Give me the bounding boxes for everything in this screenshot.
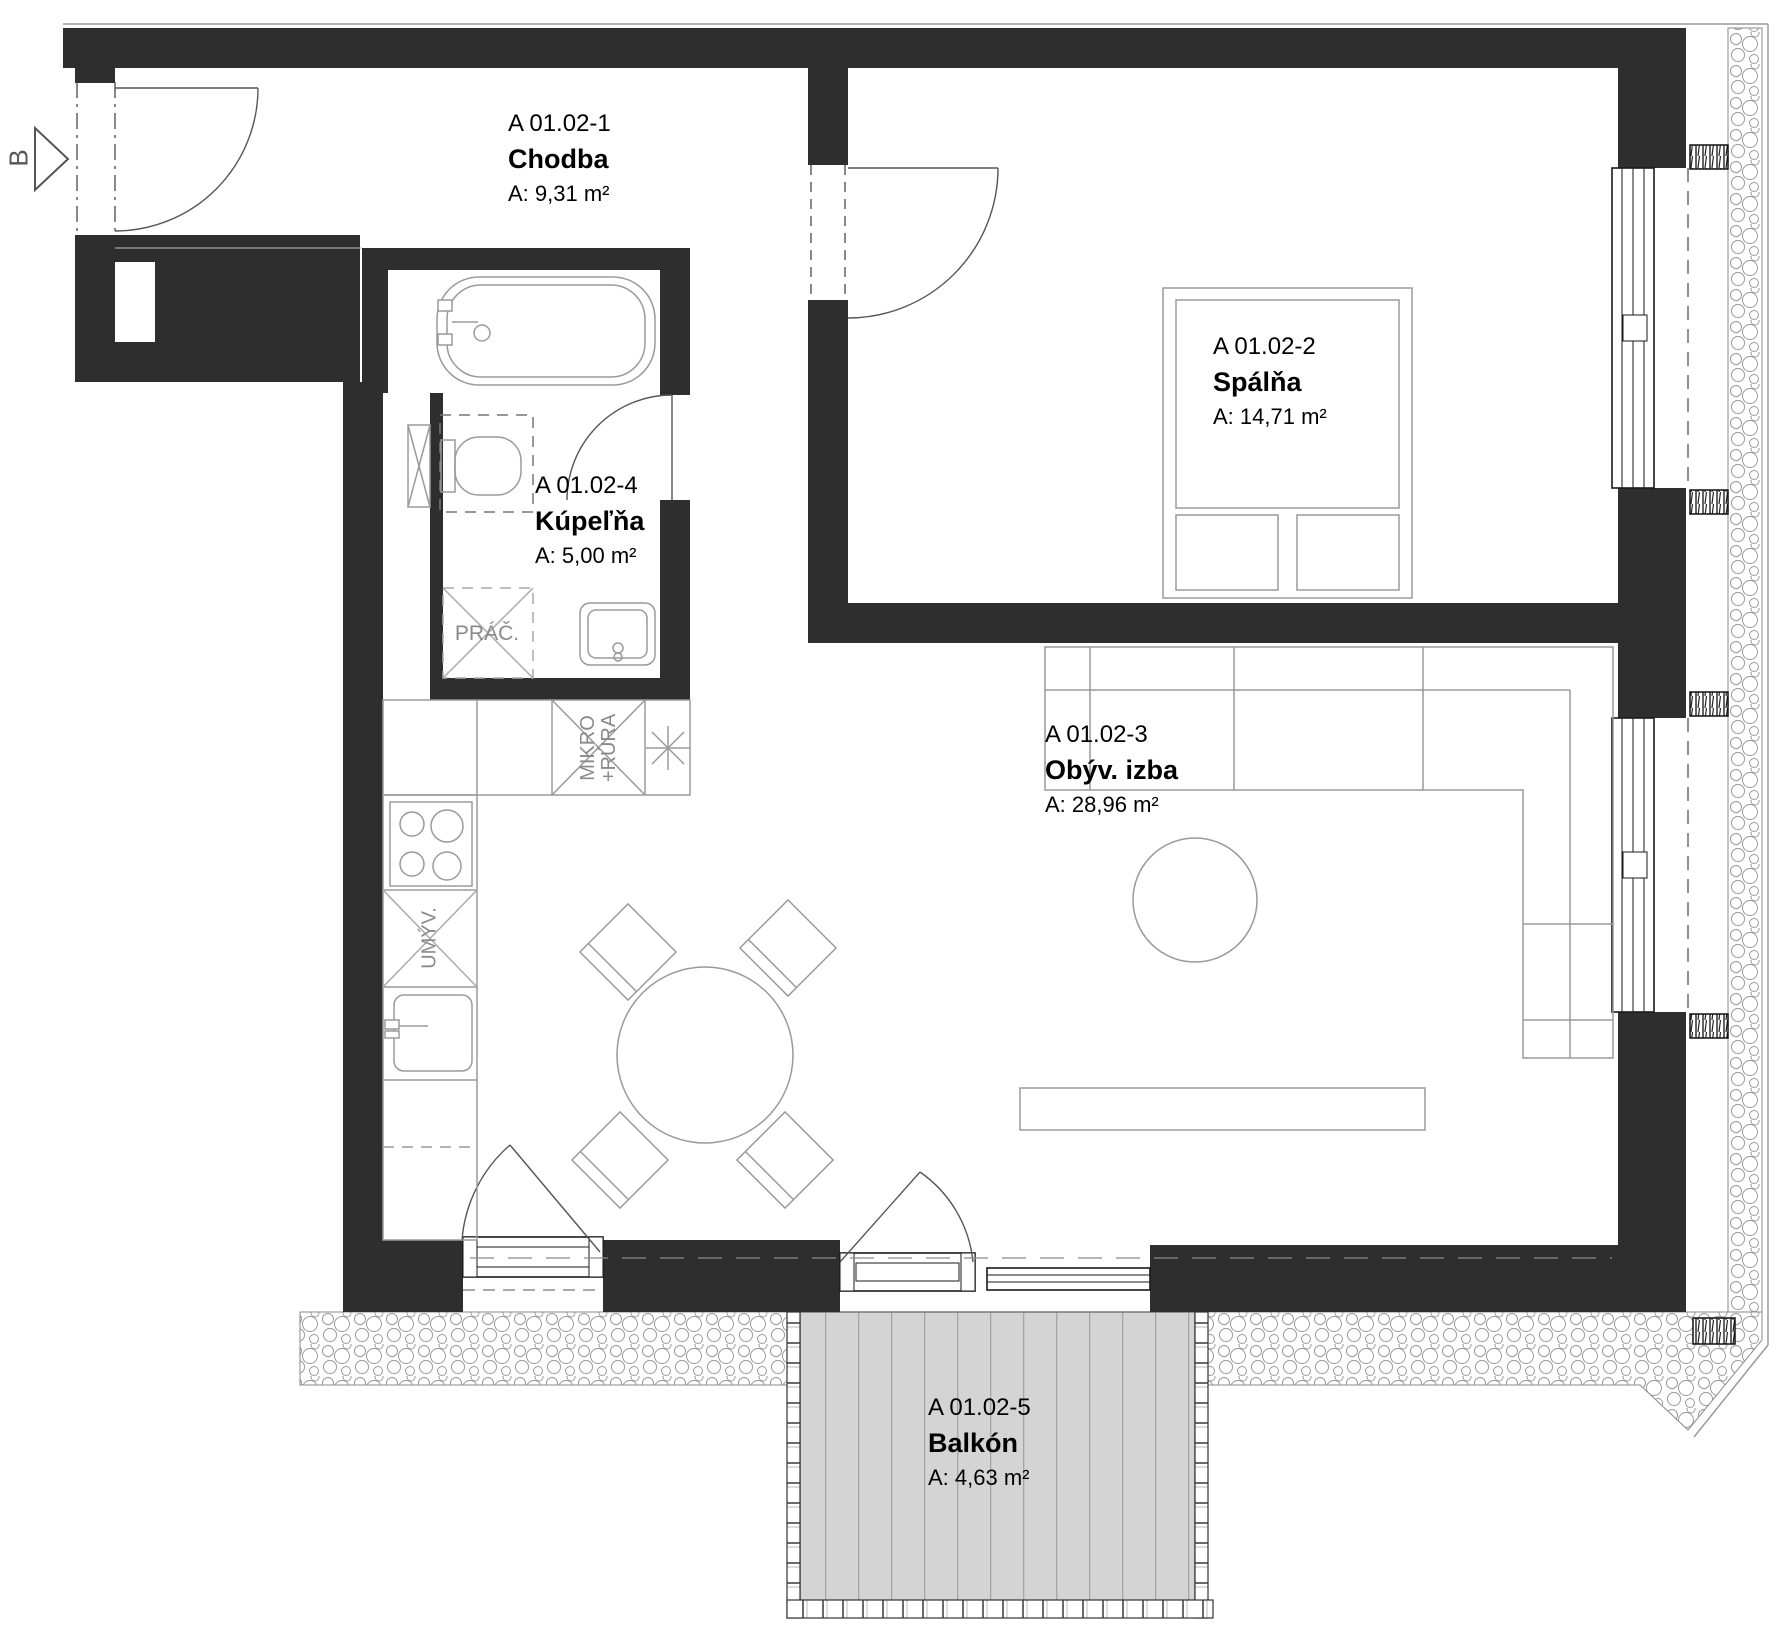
room-name: Kúpeľňa (535, 508, 644, 535)
room-area: A: 28,96 m² (1045, 794, 1178, 816)
kitchen-counter-top-run (383, 700, 690, 795)
room-label-obyv-izba: A 01.02-3 Obýv. izba A: 28,96 m² (1045, 723, 1178, 816)
room-name: Balkón (928, 1430, 1031, 1457)
fixed-window-strip (987, 1268, 1150, 1290)
dining-table (617, 967, 793, 1143)
room-name: Spálňa (1213, 369, 1327, 396)
living-room-window (1612, 718, 1688, 1012)
cooktop (390, 802, 472, 886)
light-symbol (646, 726, 690, 770)
dishwasher-label: UMÝV. (420, 907, 441, 969)
bathtub (437, 277, 655, 385)
dining-chair (580, 904, 676, 1000)
wall-niche (115, 262, 155, 342)
sideboard (1020, 1088, 1425, 1130)
room-id: A 01.02-3 (1045, 723, 1178, 747)
room-name: Obýv. izba (1045, 757, 1178, 784)
kitchen-door-threshold (463, 1237, 603, 1290)
balcony-door-threshold (840, 1253, 975, 1291)
floor-plan: A 01.02-1 Chodba A: 9,31 m² A 01.02-2 Sp… (0, 0, 1786, 1639)
room-label-spalna: A 01.02-2 Spálňa A: 14,71 m² (1213, 335, 1327, 428)
kitchen-sink (385, 995, 472, 1071)
room-label-kupelna: A 01.02-4 Kúpeľňa A: 5,00 m² (535, 474, 644, 567)
entrance-door (77, 82, 258, 232)
room-label-chodba: A 01.02-1 Chodba A: 9,31 m² (508, 112, 611, 205)
room-area: A: 9,31 m² (508, 183, 611, 205)
balcony-door-swing (840, 1172, 973, 1262)
bedroom-window (1612, 168, 1688, 488)
room-area: A: 4,63 m² (928, 1467, 1031, 1489)
room-label-balkon: A 01.02-5 Balkón A: 4,63 m² (928, 1396, 1031, 1489)
balcony-railing-left (787, 1312, 800, 1618)
balcony-railing-bottom (787, 1600, 1213, 1618)
washbasin (580, 603, 655, 665)
kitchen-balcony-door-swing (462, 1145, 600, 1252)
room-id: A 01.02-4 (535, 474, 644, 498)
room-id: A 01.02-1 (508, 112, 611, 136)
section-marker (35, 128, 68, 190)
fixtures (115, 248, 1613, 1258)
vent-shaft (408, 425, 430, 507)
room-area: A: 14,71 m² (1213, 406, 1327, 428)
room-area: A: 5,00 m² (535, 545, 644, 567)
walls (63, 28, 1686, 1312)
sofa (1045, 647, 1613, 1058)
room-id: A 01.02-5 (928, 1396, 1031, 1420)
washer-label: PRÁČ. (455, 623, 519, 645)
toilet (440, 415, 533, 512)
bedroom-door (811, 165, 998, 318)
dining-chair (737, 1112, 833, 1208)
balcony-railing-right (1195, 1312, 1208, 1618)
room-id: A 01.02-2 (1213, 335, 1327, 359)
coffee-table (1133, 838, 1257, 962)
kitchen-counter-left-run (383, 795, 477, 1240)
section-marker-label: B (4, 149, 35, 166)
micro-oven-label: MIKRO +RÚRA (578, 714, 620, 782)
floor-plan-drawing (0, 0, 1786, 1639)
room-name: Chodba (508, 146, 611, 173)
